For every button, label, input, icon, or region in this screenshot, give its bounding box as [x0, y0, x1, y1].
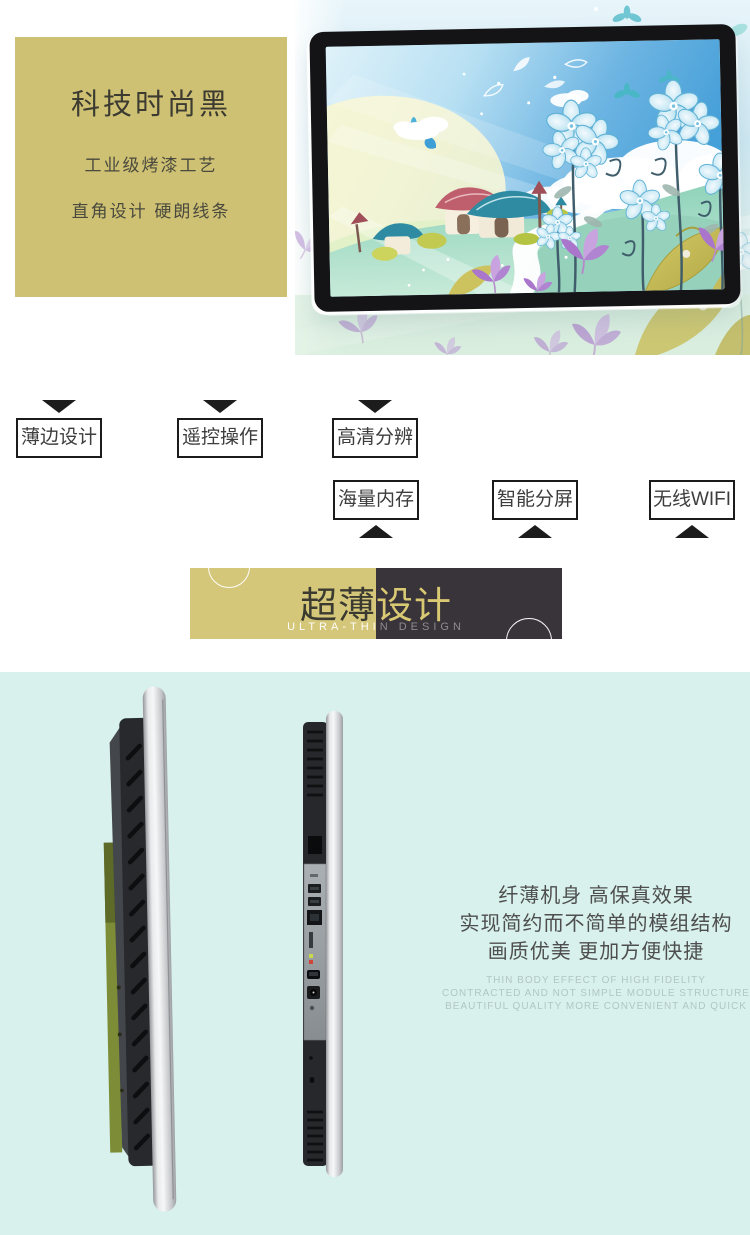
- product-detail-page: 科技时尚黑 工业级烤漆工艺 直角设计 硬朗线条: [0, 0, 750, 1235]
- triangle-up-icon: [675, 525, 709, 538]
- banner-subtitle-text: ULTRA-THIN DESIGN: [287, 621, 465, 633]
- showcase-heading-line: 纤薄机身 高保真效果: [436, 882, 750, 910]
- hero-text-panel: 科技时尚黑 工业级烤漆工艺 直角设计 硬朗线条: [15, 37, 287, 297]
- side-view-section: 纤薄机身 高保真效果 实现简约而不简单的模组结构 画质优美 更加方便快捷 THI…: [0, 672, 750, 1235]
- triangle-down-icon: [358, 400, 392, 413]
- feature-remote-control: 遥控操作: [177, 400, 263, 458]
- showcase-heading-line: 画质优美 更加方便快捷: [436, 938, 750, 966]
- feature-hd-resolution: 高清分辨: [332, 400, 418, 458]
- feature-box: 海量内存: [333, 480, 419, 520]
- feature-box: 遥控操作: [177, 418, 263, 458]
- triangle-up-icon: [359, 525, 393, 538]
- tablet-front-image: [309, 24, 740, 312]
- tablet-screen-artwork: [326, 39, 725, 297]
- feature-box: 智能分屏: [492, 480, 578, 520]
- feature-box: 薄边设计: [16, 418, 102, 458]
- feature-box: 高清分辨: [332, 418, 418, 458]
- showcase-english-line: CONTRACTED AND NOT SIMPLE MODULE STRUCTU…: [436, 987, 750, 1000]
- showcase-english-block: THIN BODY EFFECT OF HIGH FIDELITY CONTRA…: [436, 974, 750, 1013]
- feature-large-memory: 海量内存: [333, 480, 419, 538]
- hero-subtitle-1: 工业级烤漆工艺: [15, 151, 287, 176]
- device-side-large-image: [98, 682, 183, 1217]
- banner-subtitle: ULTRA-THIN DESIGN: [190, 617, 562, 635]
- feature-wireless-wifi: 无线WIFI: [649, 480, 735, 538]
- showcase-english-line: BEAUTIFUL QUALITY MORE CONVENIENT AND QU…: [436, 1000, 750, 1013]
- triangle-down-icon: [42, 400, 76, 413]
- showcase-heading-line: 实现简约而不简单的模组结构: [436, 910, 750, 938]
- device-side-ports-image: [292, 708, 347, 1183]
- feature-box: 无线WIFI: [649, 480, 735, 520]
- hero-photo: [295, 0, 750, 355]
- hero-title: 科技时尚黑: [15, 81, 287, 123]
- triangle-down-icon: [203, 400, 237, 413]
- ultra-thin-banner: 超薄设计 ULTRA-THIN DESIGN: [190, 568, 562, 639]
- feature-smart-splitscreen: 智能分屏: [492, 480, 578, 538]
- showcase-english-line: THIN BODY EFFECT OF HIGH FIDELITY: [436, 974, 750, 987]
- feature-thin-edge: 薄边设计: [16, 400, 102, 458]
- hero-subtitle-2: 直角设计 硬朗线条: [15, 197, 287, 222]
- showcase-copy: 纤薄机身 高保真效果 实现简约而不简单的模组结构 画质优美 更加方便快捷 THI…: [436, 882, 750, 1013]
- triangle-up-icon: [518, 525, 552, 538]
